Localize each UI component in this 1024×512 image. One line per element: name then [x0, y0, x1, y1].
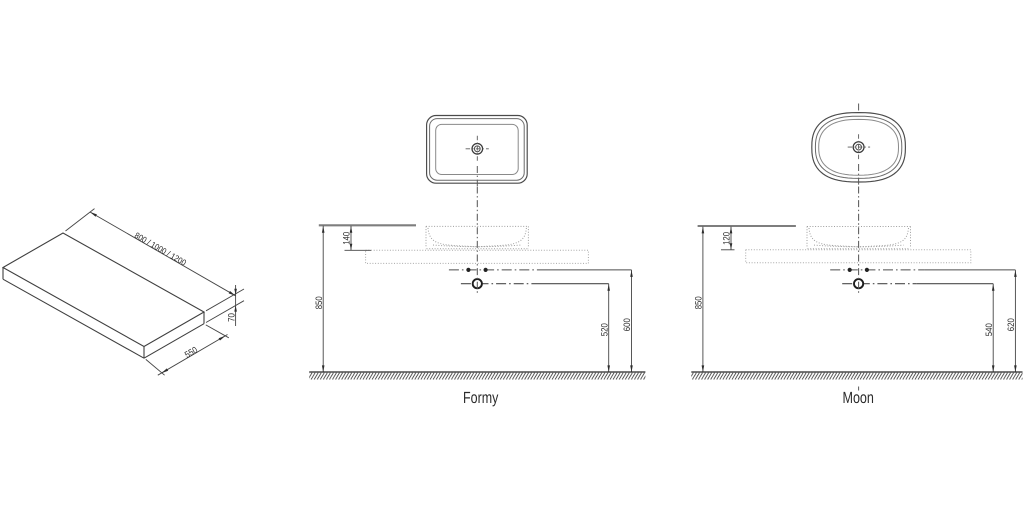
svg-text:70: 70	[226, 313, 236, 322]
svg-text:850: 850	[694, 296, 704, 309]
svg-text:600: 600	[622, 318, 632, 331]
svg-text:140: 140	[342, 232, 352, 245]
svg-text:850: 850	[314, 296, 324, 309]
svg-text:120: 120	[722, 232, 732, 245]
svg-text:540: 540	[984, 323, 994, 336]
svg-text:Moon: Moon	[843, 389, 874, 407]
svg-text:520: 520	[599, 323, 609, 336]
svg-text:Formy: Formy	[463, 389, 499, 407]
svg-text:620: 620	[1006, 318, 1016, 331]
